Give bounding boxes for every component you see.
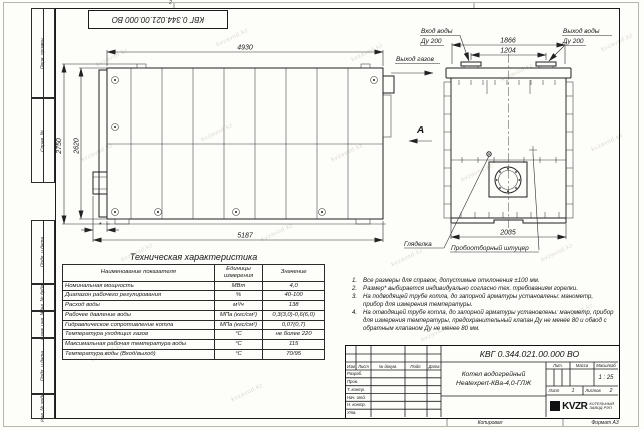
spec-cell: 0,3(3,0)-0,6(6,0) (263, 310, 325, 320)
title-block-doc-number: КВГ 0.344.021.00.000 ВО (441, 346, 618, 362)
dim-burner-asterisk: * (99, 222, 102, 229)
spec-cell: Температура уходящих газов (63, 330, 215, 340)
spec-title: Техническая характеристика (62, 252, 325, 262)
sampling-fitting-label: Пробоотборный штуцер (451, 244, 529, 252)
product-name: Котел водогрейный Heatexpert-КВа-4,0-ГЛЖ (441, 362, 546, 396)
spec-cell: °С (214, 340, 263, 350)
col-docnum: № докум. (371, 362, 405, 370)
row-tkontr: Т. контр. (347, 387, 371, 392)
water-outlet-nozzle (536, 62, 556, 68)
drawing-sheet: kvzavod.kz kvzavod.kz kvzavod.kz kvzavod… (0, 0, 644, 430)
note-text: На подводящей трубе котла, до запорной а… (363, 293, 615, 308)
row-utv: Утв. (347, 410, 371, 415)
sight-glass-label: Гляделка (404, 240, 432, 248)
bolt-marks (112, 77, 378, 216)
spec-cell: 115 (263, 340, 325, 350)
spec-row: Диапазон рабочего регулирования%40-100 (63, 291, 325, 301)
row-prov: Пров. (347, 379, 371, 384)
dim-1866: 1866 (500, 38, 516, 45)
dim-1204: 1204 (500, 48, 516, 55)
spec-cell: МПа (кгс/см²) (214, 320, 263, 330)
mass-label: Масса (570, 362, 594, 369)
flue-outlet (383, 76, 394, 93)
logo-icon (550, 401, 560, 411)
dim-2035: 2035 (499, 230, 516, 237)
spec-cell: °С (214, 330, 263, 340)
lit-label: Лит. (546, 362, 570, 369)
note-number: 1. (352, 277, 363, 285)
title-block: КВГ 0.344.021.00.000 ВО Изм Лист № докум… (345, 345, 620, 419)
spec-cell: 40-100 (263, 291, 325, 301)
spec-cell: 138 (263, 301, 325, 311)
note-item: 4.На отводящей трубе котла, до запорной … (352, 309, 615, 332)
spec-row: Температура уходящих газов°Сне более 220 (63, 330, 325, 340)
spec-row: Рабочее давление водыМПа (кгс/см²)0,3(3,… (63, 310, 325, 320)
spec-cell: Расход воды (63, 301, 215, 311)
col-podp: Подп. (405, 362, 427, 370)
note-number: 3. (352, 293, 363, 308)
spec-cell: МПа (кгс/см²) (214, 310, 263, 320)
spec-header-name: Наименование показателя (63, 265, 215, 282)
dim-2750: 2750 (56, 138, 63, 155)
water-inlet-dn-label: Ду 200 (420, 38, 442, 45)
water-outlet-label: Выход воды (563, 27, 600, 35)
main-view: 4930 5187 * 2750 2620 Выход газов (56, 45, 440, 243)
spec-cell: 70/95 (263, 350, 325, 360)
spec-row: Гидравлическое сопротивление котлаМПа (к… (63, 320, 325, 330)
row-nachotd: Нач. отд. (347, 395, 371, 400)
end-view: 1866 1204 2035 Вход воды Ду 200 Выход во… (404, 27, 612, 252)
dim-4930: 4930 (237, 45, 253, 52)
sampling-fitting-mark (529, 146, 537, 154)
dim-2620: 2620 (74, 138, 81, 155)
spec-row: Температура воды (Вход/выход)°С70/95 (63, 350, 325, 360)
spec-table: Наименование показателя Единицы измерени… (62, 264, 325, 360)
notes-section: 1.Все размеры для справок, допустимые от… (352, 277, 615, 333)
spec-header-row: Наименование показателя Единицы измерени… (63, 265, 325, 282)
sheet-label: Лист (547, 386, 561, 395)
spec-header-units: Единицы измерения (214, 265, 263, 282)
sheets-label: Листов (584, 386, 602, 395)
note-item: 3.На подводящей трубе котла, до запорной… (352, 293, 615, 308)
col-izm: Изм (346, 362, 356, 370)
copied-label: Копировал (450, 420, 530, 426)
spec-cell: °С (214, 350, 263, 360)
spec-cell: МВт (214, 281, 263, 291)
row-razrab: Разраб. (347, 371, 371, 376)
spec-cell: не более 220 (263, 330, 325, 340)
scale-value: 1 : 25 (594, 369, 618, 386)
note-text: Все размеры для справок, допустимые откл… (363, 277, 615, 285)
burner-flange (489, 162, 527, 197)
product-name-line1: Котел водогрейный (462, 370, 526, 379)
manufacturer-logo: KVZR КОТЕЛЬНЫЙ ЗАВОД РЭП (546, 395, 618, 417)
spec-cell: 0,07(0,7) (263, 320, 325, 330)
sheets-value: 2 (606, 386, 616, 395)
spec-cell: м³/ч (214, 301, 263, 311)
water-inlet-label: Вход воды (421, 27, 453, 35)
note-text: На отводящей трубе котла, до запорной ар… (363, 309, 615, 332)
gas-outlet-label: Выход газов (396, 55, 434, 63)
logo-sub2: ЗАВОД РЭП (589, 406, 614, 410)
spec-cell: Температура воды (Вход/выход) (63, 350, 215, 360)
spec-cell: 4,0 (263, 281, 325, 291)
spec-row: Номинальная мощностьМВт4,0 (63, 281, 325, 291)
spec-header-value: Значение (263, 265, 325, 282)
spec-cell: Максимальная рабочая температура воды (63, 340, 215, 350)
spec-row: Максимальная рабочая температура воды°С1… (63, 340, 325, 350)
scale-label: Масштаб (594, 362, 618, 369)
dim-5187: 5187 (237, 233, 254, 240)
spec-row: Расход водым³/ч138 (63, 301, 325, 311)
water-inlet-nozzle (461, 62, 481, 68)
col-data: Дата (427, 362, 441, 370)
note-number: 2. (352, 285, 363, 293)
spec-cell: Рабочее давление воды (63, 310, 215, 320)
spec-cell: % (214, 291, 263, 301)
sheet-value: 1 (568, 386, 578, 395)
spec-cell: Диапазон рабочего регулирования (63, 291, 215, 301)
note-item: 2.Размер* выбирается индивидуально согла… (352, 285, 615, 293)
spec-cell: Номинальная мощность (63, 281, 215, 291)
spec-cell: Гидравлическое сопротивление котла (63, 320, 215, 330)
note-text: Размер* выбирается индивидуально согласн… (363, 285, 615, 293)
water-outlet-dn-label: Ду 200 (562, 38, 584, 45)
spec-section: Техническая характеристика Наименование … (62, 252, 325, 360)
logo-text: KVZR (562, 401, 587, 412)
product-name-line2: Heatexpert-КВа-4,0-ГЛЖ (456, 379, 531, 388)
note-number: 4. (352, 309, 363, 332)
note-item: 1.Все размеры для справок, допустимые от… (352, 277, 615, 285)
format-label: Формат А3 (570, 420, 640, 426)
row-nkontr: Н. контр. (347, 402, 371, 407)
view-a-label: А (416, 125, 424, 136)
col-list: Лист (356, 362, 371, 370)
